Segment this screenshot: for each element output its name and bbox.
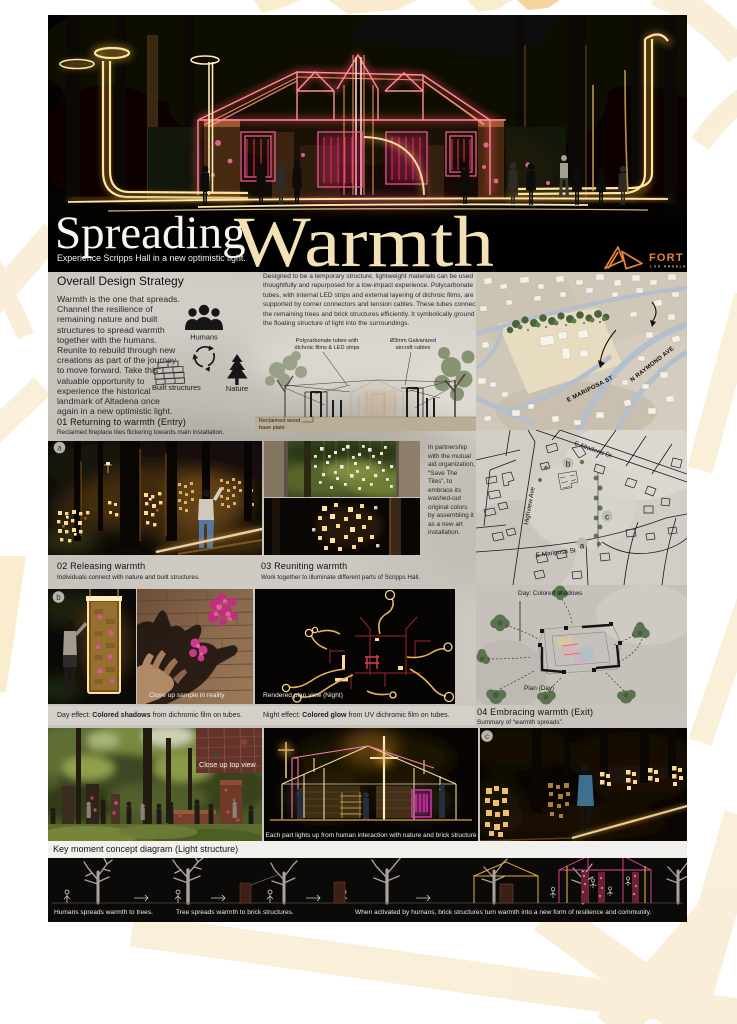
svg-text:Day: Colored shadows: Day: Colored shadows [518, 590, 582, 597]
svg-text:Humans spreads warmth to trees: Humans spreads warmth to trees. [54, 909, 153, 916]
svg-text:a: a [580, 541, 585, 550]
svg-text:Ø3mm Galvanized: Ø3mm Galvanized [390, 338, 436, 344]
svg-text:Nature: Nature [226, 384, 248, 393]
svg-text:c: c [605, 512, 609, 521]
svg-text:Humans: Humans [190, 333, 218, 342]
svg-text:base plate: base plate [259, 425, 285, 431]
svg-text:Tree spreads warmth to brick s: Tree spreads warmth to brick structures. [176, 909, 294, 916]
svg-text:aircraft cables: aircraft cables [396, 345, 431, 351]
svg-text:a: a [57, 444, 62, 453]
svg-text:Reclaimed wood: Reclaimed wood [259, 418, 300, 424]
svg-text:LOS ANGELES: LOS ANGELES [650, 265, 687, 269]
svg-text:FORT: FORT [649, 252, 684, 264]
svg-text:Plan (Day): Plan (Day) [524, 685, 554, 692]
svg-text:Each part lights up from human: Each part lights up from human interacti… [266, 832, 477, 839]
svg-text:b: b [56, 593, 61, 602]
svg-text:Rendered plan view (Night): Rendered plan view (Night) [263, 692, 343, 699]
svg-text:Close up sample in reality: Close up sample in reality [149, 692, 225, 699]
svg-text:Polycarbonate tubes with: Polycarbonate tubes with [296, 338, 359, 344]
svg-text:dichroic films & LED strips: dichroic films & LED strips [295, 345, 360, 351]
svg-text:Built structures: Built structures [152, 383, 201, 392]
svg-text:When activated by humans, bric: When activated by humans, brick structur… [355, 909, 652, 916]
svg-text:c: c [485, 732, 489, 741]
svg-text:Close up top view: Close up top view [199, 760, 257, 769]
svg-text:b: b [566, 459, 571, 468]
